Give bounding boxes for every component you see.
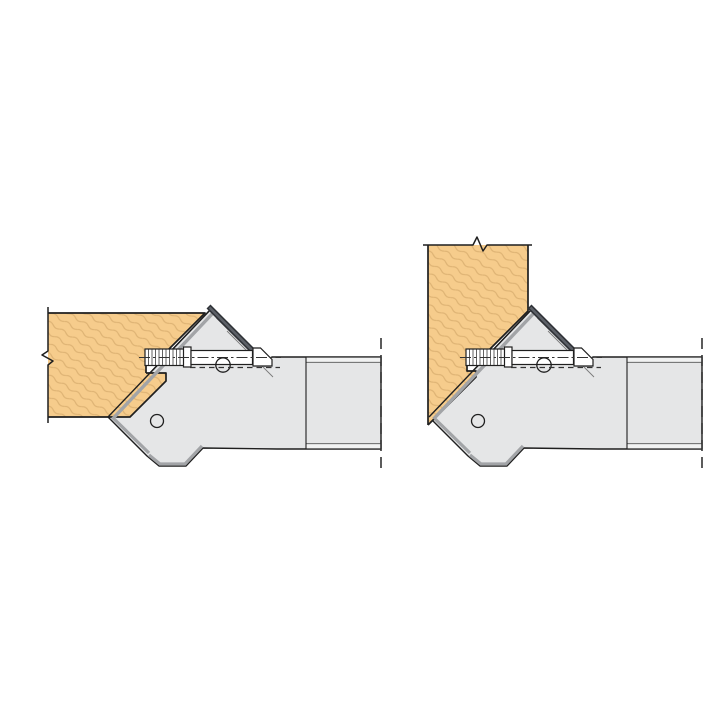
chamfer-cutter-diagram — [0, 0, 720, 720]
diagram-page — [0, 0, 720, 720]
diagram-left — [42, 307, 381, 469]
diagram-right — [423, 237, 702, 468]
